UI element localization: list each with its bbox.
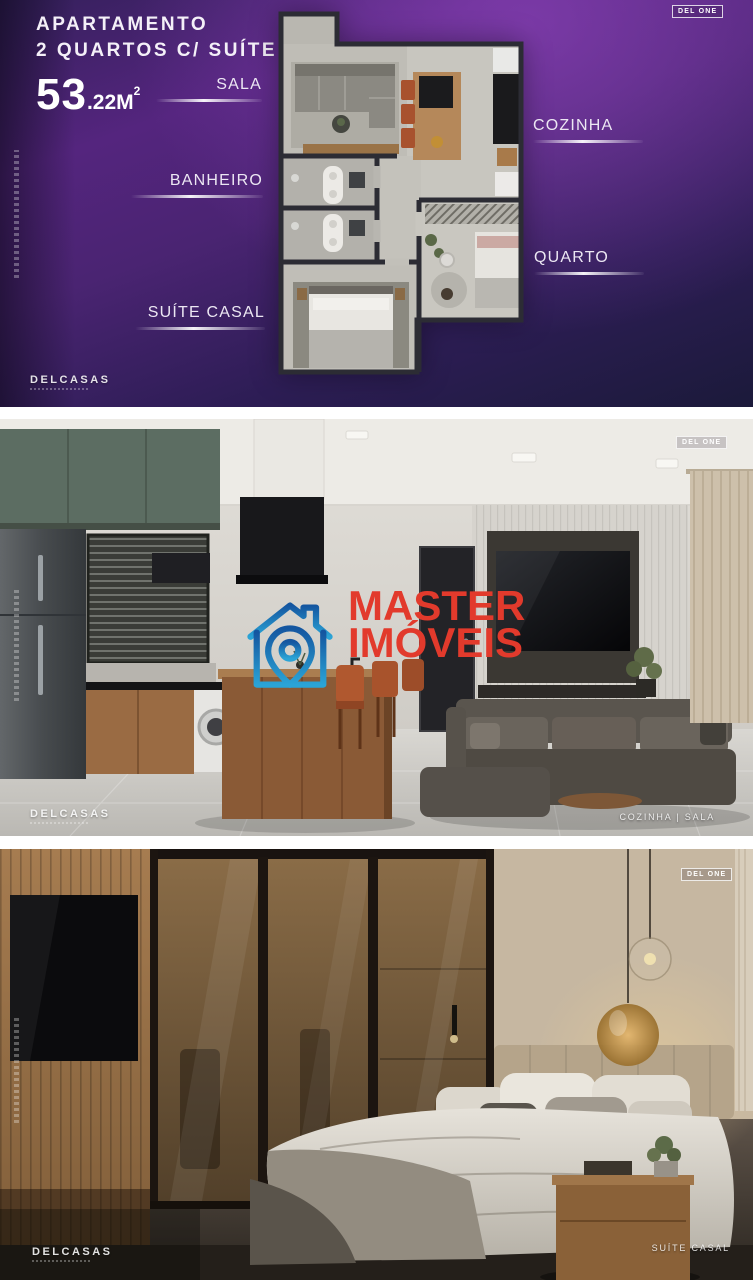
area-superscript: 2: [134, 84, 141, 98]
delcasas-logo: DELCASAS: [30, 808, 111, 824]
wall-tv: [10, 895, 138, 1061]
plan-living-room: [291, 62, 399, 154]
floorplan-panel: DEL ONE APARTAMENTO 2 QUARTOS C/ SUÍTE 5…: [0, 0, 753, 407]
room-caption: COZINHA | SALA: [619, 812, 715, 822]
del-one-badge: DEL ONE: [681, 868, 732, 881]
house-pin-icon: [238, 593, 342, 693]
title-line-1: APARTAMENTO: [36, 12, 277, 38]
vertical-fine-print: [14, 150, 19, 278]
label-suite-casal-text: SUÍTE CASAL: [148, 304, 265, 321]
delcasas-tagline: [30, 388, 88, 390]
master-imoveis-watermark: MASTER IMÓVEIS: [238, 587, 525, 693]
label-underline: [534, 272, 644, 275]
delcasas-tagline: [30, 822, 88, 824]
delcasas-text: DELCASAS: [32, 1246, 113, 1258]
plan-master-suite: [293, 282, 409, 368]
real-estate-flyer: DEL ONE APARTAMENTO 2 QUARTOS C/ SUÍTE 5…: [0, 0, 753, 1280]
kitchen-cabinets: [0, 429, 238, 779]
label-underline: [156, 99, 262, 102]
sofa: [420, 699, 736, 817]
label-sala: SALA: [156, 76, 262, 102]
label-underline: [135, 327, 265, 330]
del-one-badge: DEL ONE: [672, 5, 723, 18]
label-cozinha: COZINHA: [533, 117, 643, 143]
delcasas-logo: DELCASAS: [30, 374, 111, 390]
bedroom-panel: DEL ONE DELCASAS SUÍTE CASAL: [0, 849, 753, 1280]
bedroom-photo: [0, 849, 753, 1280]
kitchen-living-panel: DEL ONE MASTER IMÓVEIS: [0, 419, 753, 836]
del-one-badge: DEL ONE: [676, 436, 727, 449]
delcasas-tagline: [32, 1260, 90, 1262]
label-underline: [533, 140, 643, 143]
delcasas-text: DELCASAS: [30, 808, 111, 820]
floorplan-drawing: [277, 6, 533, 384]
label-underline: [131, 195, 263, 198]
label-quarto: QUARTO: [534, 249, 644, 275]
label-cozinha-text: COZINHA: [533, 117, 613, 134]
watermark-text: MASTER IMÓVEIS: [348, 587, 525, 661]
curtain: [686, 469, 753, 723]
apartment-title: APARTAMENTO 2 QUARTOS C/ SUÍTE 53.22M2: [36, 12, 277, 120]
watermark-line-2: IMÓVEIS: [348, 624, 525, 661]
vertical-fine-print: [14, 1017, 19, 1123]
label-sala-text: SALA: [216, 76, 262, 93]
label-banheiro: BANHEIRO: [131, 172, 263, 198]
title-line-2: 2 QUARTOS C/ SUÍTE: [36, 38, 277, 64]
label-suite-casal: SUÍTE CASAL: [135, 304, 265, 330]
area-unit: M: [116, 91, 134, 114]
vertical-fine-print: [14, 589, 19, 701]
room-caption: SUÍTE CASAL: [652, 1243, 730, 1253]
label-banheiro-text: BANHEIRO: [170, 172, 263, 189]
area-whole: 53: [36, 70, 87, 119]
area-decimal: .22: [87, 91, 116, 114]
label-quarto-text: QUARTO: [534, 249, 609, 266]
delcasas-text: DELCASAS: [30, 374, 111, 386]
delcasas-logo: DELCASAS: [32, 1246, 113, 1262]
